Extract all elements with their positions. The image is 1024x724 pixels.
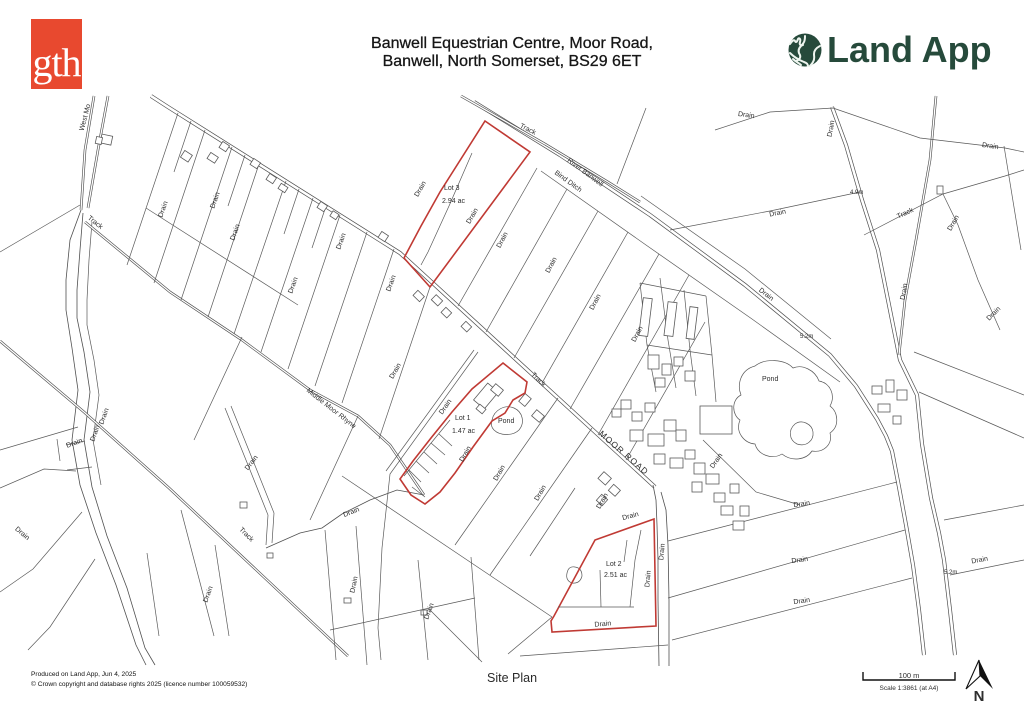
svg-text:Drain: Drain: [209, 191, 221, 209]
svg-text:Drain: Drain: [971, 556, 989, 566]
svg-text:Lot 3: Lot 3: [444, 185, 460, 192]
svg-text:Drain: Drain: [981, 142, 999, 151]
svg-text:Drain: Drain: [342, 506, 360, 519]
svg-text:Drain: Drain: [533, 484, 547, 502]
svg-text:Drain: Drain: [413, 180, 427, 198]
svg-text:Drain: Drain: [793, 500, 811, 509]
svg-text:2.51 ac: 2.51 ac: [604, 572, 627, 579]
svg-text:Drain: Drain: [658, 543, 666, 560]
svg-text:Drain: Drain: [349, 576, 359, 594]
svg-text:Pond: Pond: [762, 376, 778, 383]
svg-text:Drain: Drain: [98, 407, 110, 425]
svg-text:Drain: Drain: [388, 362, 402, 380]
svg-text:Drain: Drain: [737, 111, 755, 120]
svg-text:Drain: Drain: [946, 214, 960, 232]
svg-text:Drain: Drain: [644, 570, 652, 587]
svg-text:Pond: Pond: [498, 418, 514, 425]
svg-text:N: N: [974, 688, 985, 705]
svg-text:Drain: Drain: [89, 424, 101, 442]
svg-text:2.94 ac: 2.94 ac: [442, 198, 465, 205]
svg-text:Drain: Drain: [202, 585, 214, 603]
svg-text:5.2m: 5.2m: [944, 570, 957, 576]
svg-text:Drain: Drain: [827, 120, 837, 138]
svg-text:Drain: Drain: [65, 437, 83, 449]
svg-text:Drain: Drain: [769, 208, 787, 218]
svg-text:Drain: Drain: [791, 556, 809, 565]
svg-text:Drain: Drain: [589, 293, 603, 311]
svg-text:Drain: Drain: [492, 464, 506, 482]
svg-text:Drain: Drain: [244, 454, 260, 472]
svg-text:Scale 1:3861 (at A4): Scale 1:3861 (at A4): [880, 685, 939, 692]
svg-text:Track: Track: [896, 207, 915, 221]
svg-text:Drain: Drain: [496, 231, 510, 249]
svg-text:Drain: Drain: [458, 445, 472, 463]
svg-text:Middle Moor Rhyne: Middle Moor Rhyne: [305, 387, 357, 430]
svg-text:Drain: Drain: [157, 200, 169, 218]
svg-text:Drain: Drain: [385, 274, 397, 292]
svg-text:Drain: Drain: [423, 602, 435, 620]
svg-text:Lot 2: Lot 2: [606, 561, 622, 568]
svg-text:Drain: Drain: [709, 452, 724, 470]
svg-text:Lot 1: Lot 1: [455, 415, 471, 422]
svg-text:Drain: Drain: [594, 620, 611, 628]
svg-text:1.47 ac: 1.47 ac: [452, 428, 475, 435]
svg-text:Drain: Drain: [287, 276, 299, 294]
svg-text:5.2m: 5.2m: [800, 334, 813, 340]
svg-text:Drain: Drain: [13, 526, 30, 542]
svg-text:Drain: Drain: [335, 232, 347, 250]
svg-text:Track: Track: [237, 526, 254, 543]
svg-text:4.9m: 4.9m: [850, 190, 863, 196]
svg-text:Drain: Drain: [595, 492, 609, 510]
svg-text:Drain: Drain: [545, 256, 559, 274]
svg-text:Drain: Drain: [229, 223, 241, 241]
svg-text:Drain: Drain: [986, 305, 1003, 322]
svg-text:Drain: Drain: [900, 283, 910, 301]
svg-text:Drain: Drain: [622, 511, 640, 522]
